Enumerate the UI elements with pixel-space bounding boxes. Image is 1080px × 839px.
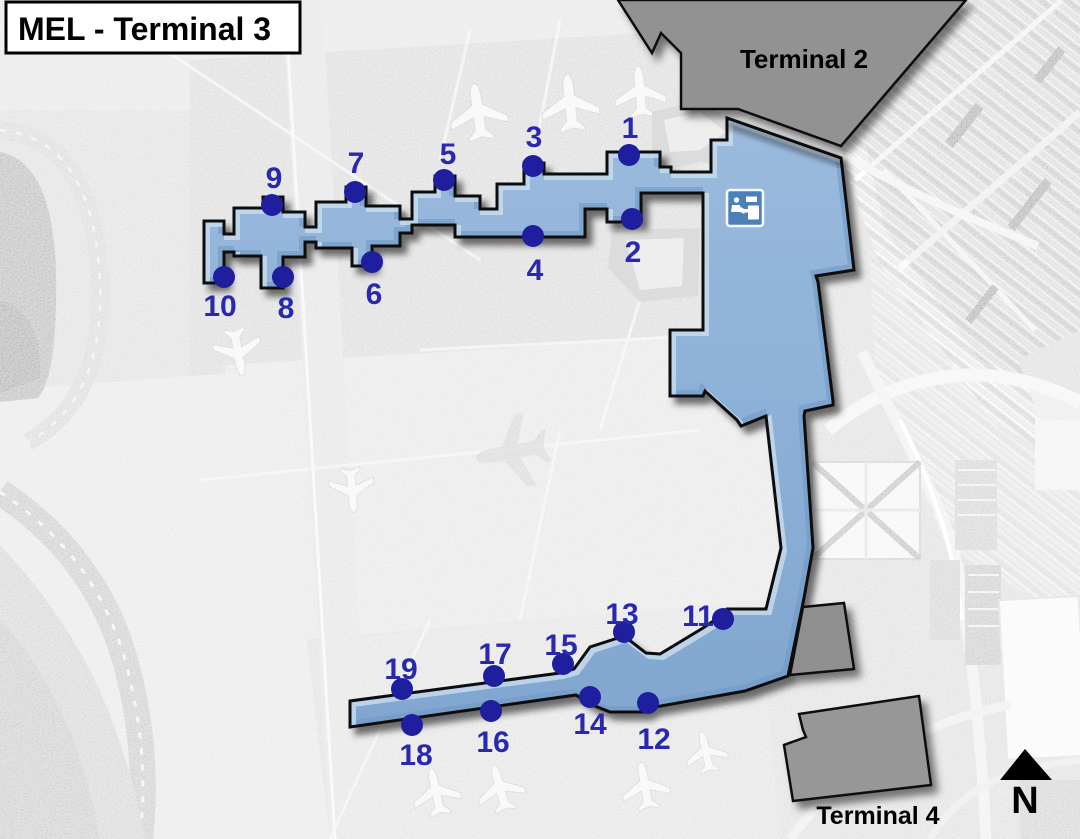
svg-text:Terminal 2: Terminal 2 [740,44,868,74]
svg-text:13: 13 [605,598,638,631]
svg-text:14: 14 [573,708,607,741]
svg-text:8: 8 [278,292,295,325]
svg-text:11: 11 [682,600,714,633]
svg-text:6: 6 [366,278,383,311]
svg-text:16: 16 [476,726,509,759]
svg-text:17: 17 [478,638,511,671]
svg-text:7: 7 [348,147,365,180]
svg-text:Terminal 4: Terminal 4 [816,802,939,830]
svg-text:18: 18 [399,739,432,772]
svg-text:N: N [1011,780,1038,822]
svg-text:19: 19 [384,653,417,686]
svg-text:12: 12 [637,723,670,756]
svg-text:4: 4 [527,254,544,287]
svg-text:10: 10 [203,290,236,323]
svg-text:3: 3 [526,121,543,154]
svg-text:MEL - Terminal 3: MEL - Terminal 3 [18,11,271,47]
svg-text:1: 1 [622,112,639,145]
svg-text:2: 2 [625,236,642,269]
svg-text:9: 9 [266,162,283,195]
svg-text:5: 5 [440,138,457,171]
svg-text:15: 15 [544,629,577,662]
